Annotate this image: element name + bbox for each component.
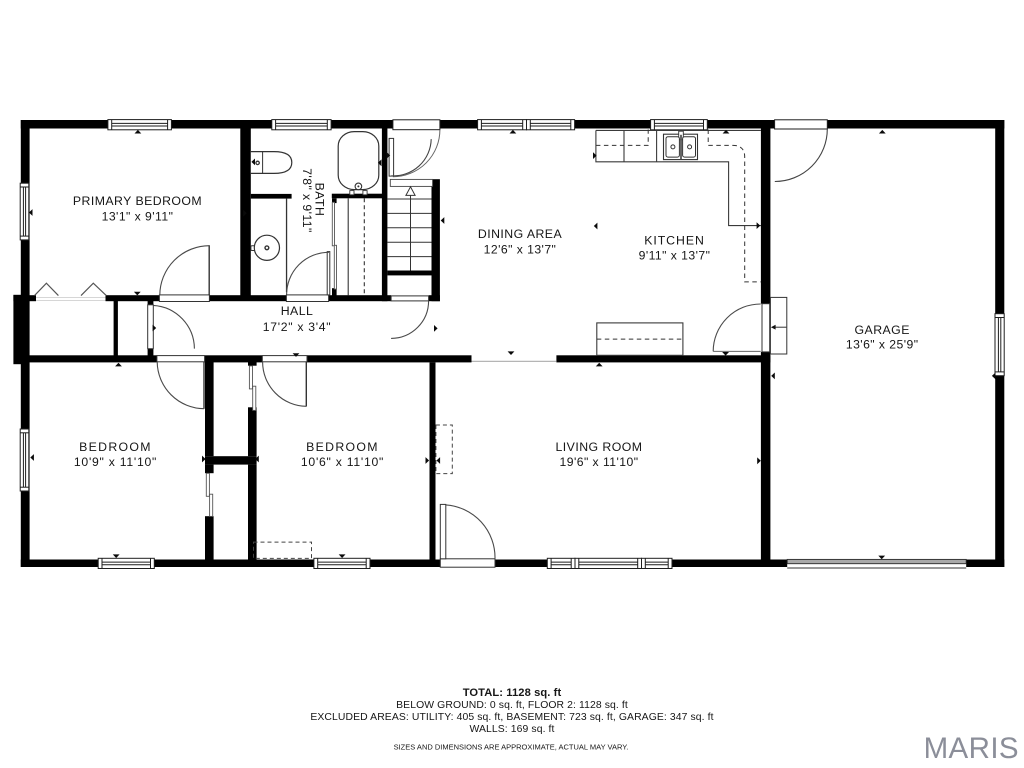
svg-text:EXCLUDED AREAS: UTILITY: 405 s: EXCLUDED AREAS: UTILITY: 405 sq. ft, BAS…: [310, 712, 713, 723]
svg-text:19'6" x 11'10": 19'6" x 11'10": [559, 455, 638, 469]
svg-text:10'9" x 11'10": 10'9" x 11'10": [74, 455, 157, 469]
svg-text:BEDROOM: BEDROOM: [79, 440, 152, 454]
svg-text:HALL: HALL: [281, 304, 314, 318]
svg-text:7'8" x 9'11": 7'8" x 9'11": [300, 168, 314, 233]
svg-text:WALLS: 169 sq. ft: WALLS: 169 sq. ft: [469, 724, 554, 735]
svg-text:13'1" x 9'11": 13'1" x 9'11": [102, 209, 174, 223]
svg-text:BEDROOM: BEDROOM: [306, 440, 379, 454]
svg-text:17'2" x 3'4": 17'2" x 3'4": [263, 320, 331, 334]
svg-text:TOTAL: 1128 sq. ft: TOTAL: 1128 sq. ft: [463, 687, 562, 699]
svg-text:DINING AREA: DINING AREA: [478, 227, 563, 241]
svg-text:13'6" x 25'9": 13'6" x 25'9": [846, 338, 919, 352]
svg-text:GARAGE: GARAGE: [855, 323, 910, 337]
svg-text:12'6" x 13'7": 12'6" x 13'7": [484, 243, 557, 257]
svg-text:PRIMARY BEDROOM: PRIMARY BEDROOM: [73, 194, 202, 208]
svg-text:KITCHEN: KITCHEN: [644, 233, 705, 247]
svg-text:MARIS: MARIS: [924, 732, 1019, 765]
svg-text:10'6" x 11'10": 10'6" x 11'10": [301, 455, 384, 469]
svg-text:BELOW GROUND: 0 sq. ft, FLOOR: BELOW GROUND: 0 sq. ft, FLOOR 2: 1128 sq…: [396, 700, 628, 711]
svg-text:SIZES AND DIMENSIONS ARE APPRO: SIZES AND DIMENSIONS ARE APPROXIMATE, AC…: [394, 743, 629, 752]
svg-text:9'11" x 13'7": 9'11" x 13'7": [639, 249, 711, 263]
svg-text:LIVING ROOM: LIVING ROOM: [556, 440, 643, 454]
